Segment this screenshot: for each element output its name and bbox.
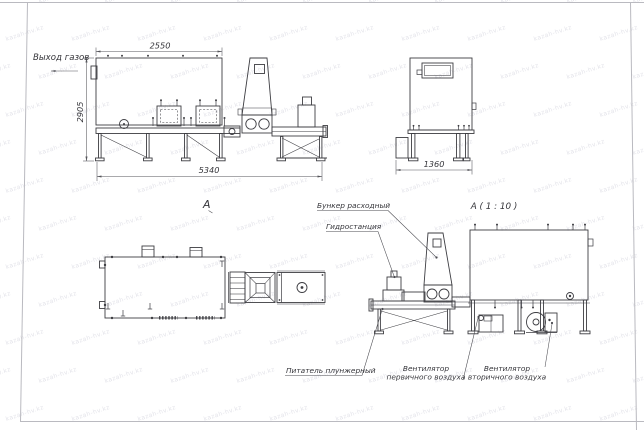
inspection-hatches: [153, 101, 225, 126]
detail-view-title: A ( 1 : 10 ): [470, 202, 518, 212]
dryer-chamber-outline: [96, 58, 222, 125]
feed-hopper-detail: [424, 233, 470, 307]
bolt-dots: [107, 55, 226, 125]
feed-hopper-tower: [238, 58, 276, 133]
dim-5340: 5340: [199, 165, 220, 175]
callout-hydraulic-station: Гидростанция: [326, 222, 382, 231]
callout-plunger-feeder: Питатель плунжерный: [286, 366, 376, 375]
dim-1360: 1360: [424, 159, 445, 169]
drawing-canvas: 2550 2905 5340 Выход газов: [0, 0, 644, 430]
detail-dots: [474, 224, 586, 322]
primary-air-fan: [479, 315, 504, 332]
end-elevation-view: [396, 58, 476, 161]
leader-dots: [381, 256, 553, 324]
hydraulic-station: [383, 271, 404, 301]
dim-2550: 2550: [150, 41, 171, 51]
feeder-conveyor: [272, 97, 328, 161]
callout-feed-hopper: Бункер расходный: [317, 201, 390, 210]
detail-view: [369, 224, 593, 334]
dim-2905: 2905: [75, 102, 85, 123]
plan-bolt-dots: [104, 256, 324, 319]
flange-stack: [229, 272, 246, 303]
section-ticks: [106, 261, 224, 316]
callout-secondary-air-fan-line2: вторичного воздуха: [468, 373, 547, 382]
drawing-sheet: kazah-hv.kzkazah-hv.kzkazah-hv.kzkazah-h…: [0, 0, 644, 430]
side-elevation-view: [91, 55, 328, 161]
chamber-detail: [468, 226, 593, 334]
plan-view: [100, 246, 326, 319]
plan-view-label: A: [202, 198, 211, 211]
gas-outlet-label: Выход газов: [33, 53, 89, 63]
hopper-plan: [245, 273, 275, 303]
callout-primary-air-fan-line2: первичного воздуха: [387, 373, 466, 382]
support-frame: [96, 128, 241, 161]
